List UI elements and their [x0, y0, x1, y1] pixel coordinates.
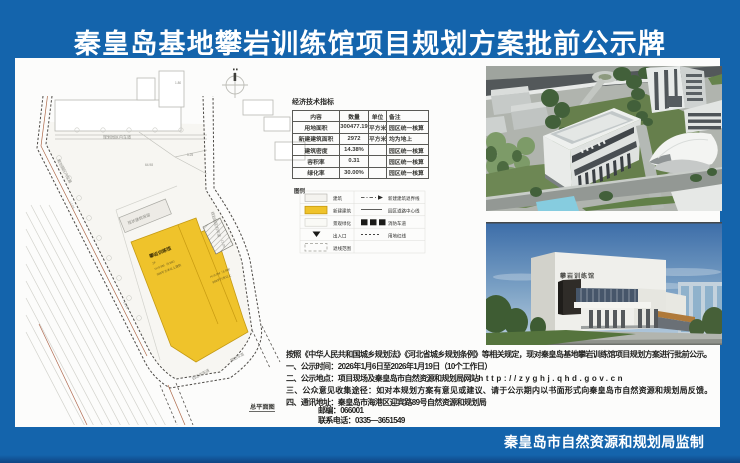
svg-text:消防车道: 消防车道	[388, 220, 406, 227]
svg-text:新建建筑: 新建建筑	[333, 208, 351, 215]
svg-text:5.25: 5.25	[187, 153, 193, 157]
svg-text:64.98: 64.98	[145, 163, 153, 167]
svg-text:攀岩训练馆: 攀岩训练馆	[559, 272, 595, 280]
svg-text:用地红线: 用地红线	[388, 232, 406, 239]
svg-text:1.80: 1.80	[175, 81, 181, 85]
svg-text:园区道路中心线: 园区道路中心线	[388, 208, 420, 215]
svg-text:出入口: 出入口	[333, 232, 347, 239]
svg-text:总平面图: 总平面图	[250, 403, 275, 411]
svg-text:景观绿化: 景观绿化	[333, 220, 351, 227]
svg-text:规划园区内车道: 规划园区内车道	[103, 134, 131, 140]
svg-text:退线范围: 退线范围	[333, 245, 351, 252]
svg-text:建筑: 建筑	[333, 195, 342, 202]
svg-text:新建建筑退界线: 新建建筑退界线	[388, 195, 420, 202]
